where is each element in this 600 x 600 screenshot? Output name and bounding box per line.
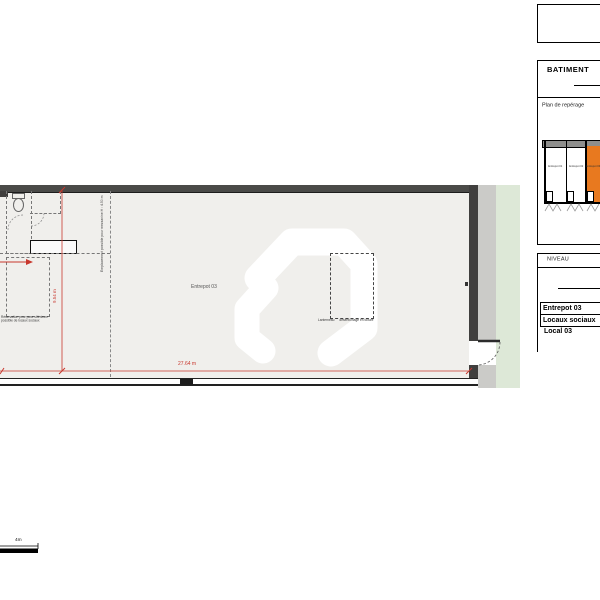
mini-plan-unit-label: Entrepot 03 xyxy=(584,161,600,171)
mini-plan-door-icon xyxy=(587,191,594,202)
mini-plan-unit-label: Entrepot 01 xyxy=(545,161,565,171)
reservation-zone-outline xyxy=(6,257,50,317)
sanitary-room-outline xyxy=(30,191,61,214)
sheet-title-row: Local 03 xyxy=(542,326,572,337)
wall-south xyxy=(0,378,478,386)
exterior-door-opening xyxy=(478,341,496,365)
skylight-caption: Lanterneaudésenfumage en toiture xyxy=(318,318,379,322)
floor-plan-sheet: Réservation pour pose ultérieure possibl… xyxy=(0,0,600,600)
title-block-top-box xyxy=(537,4,600,43)
level-label: NIVEAU xyxy=(547,256,569,262)
level-box-header: NIVEAU xyxy=(537,253,600,268)
building-title: BATIMENT xyxy=(547,65,589,74)
sheet-title-2: Locaux sociaux xyxy=(541,315,600,326)
east-wall-fixture xyxy=(465,282,468,286)
south-wall-joint-marker xyxy=(180,378,193,385)
mini-plan-door-icon xyxy=(546,191,553,202)
location-plan-label: Plan de repérage xyxy=(542,102,584,108)
building-title-underline xyxy=(574,85,600,86)
sheet-title-3: Local 03 xyxy=(542,326,572,337)
mini-plan-bottom-wall xyxy=(544,202,600,204)
mini-plan-unit-label: Entrepot 02 xyxy=(566,161,586,171)
warehouse-floor-area xyxy=(0,191,469,378)
height-dimension-label: 9.54 m xyxy=(52,289,57,303)
mezzanine-note: Emplacement possible pour mezzanine H : … xyxy=(100,196,104,272)
level-box-line xyxy=(558,288,600,289)
roof-skylight-outline xyxy=(330,253,374,319)
mezzanine-limit-dashed-line xyxy=(110,191,111,377)
toilet-bowl-icon xyxy=(13,198,24,212)
future-partition-dashed-line xyxy=(0,253,110,254)
exterior-green-strip xyxy=(496,185,520,388)
wall-east-upper xyxy=(469,185,478,341)
title-block-building-box: BATIMENT Plan de repérage Entrepot 01 En… xyxy=(537,60,600,245)
scale-bar-label: 4m xyxy=(15,537,22,542)
sheet-title-1: Entrepot 03 xyxy=(541,303,600,314)
location-mini-plan: Entrepot 01 Entrepot 02 Entrepot 03 xyxy=(542,134,600,214)
reservation-note: Réservation pour pose ultérieure possibl… xyxy=(1,315,48,322)
room-label: Entrepot 03 xyxy=(191,284,217,290)
sink-counter xyxy=(30,240,77,254)
wall-north xyxy=(0,185,478,193)
mini-plan-door-icon xyxy=(567,191,574,202)
building-box-separator xyxy=(538,97,600,98)
width-dimension-label: 27.64 m xyxy=(178,361,196,367)
